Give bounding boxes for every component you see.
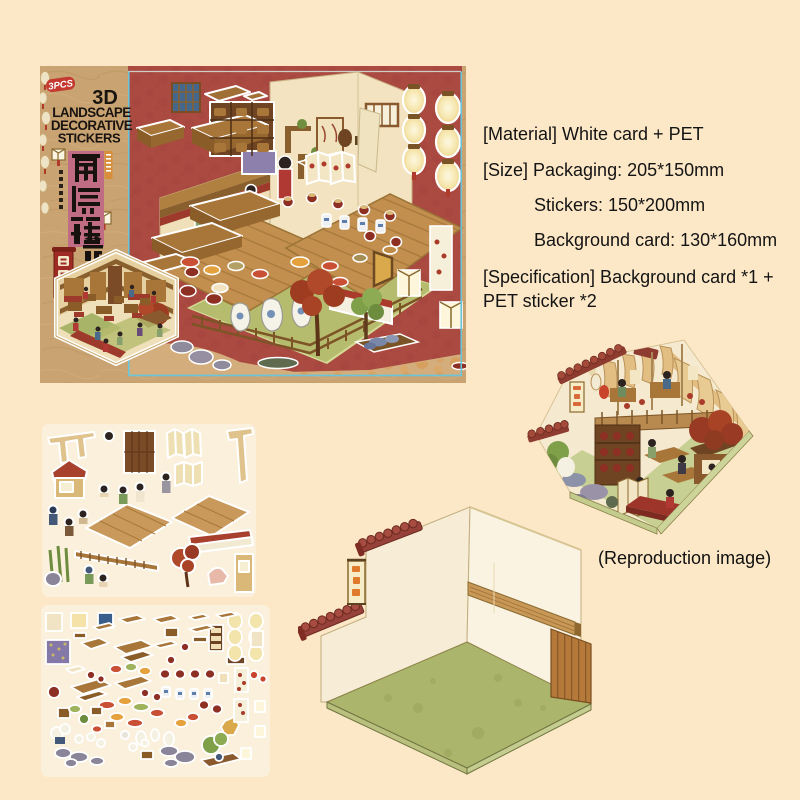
svg-text:STICKERS: STICKERS bbox=[58, 131, 121, 146]
